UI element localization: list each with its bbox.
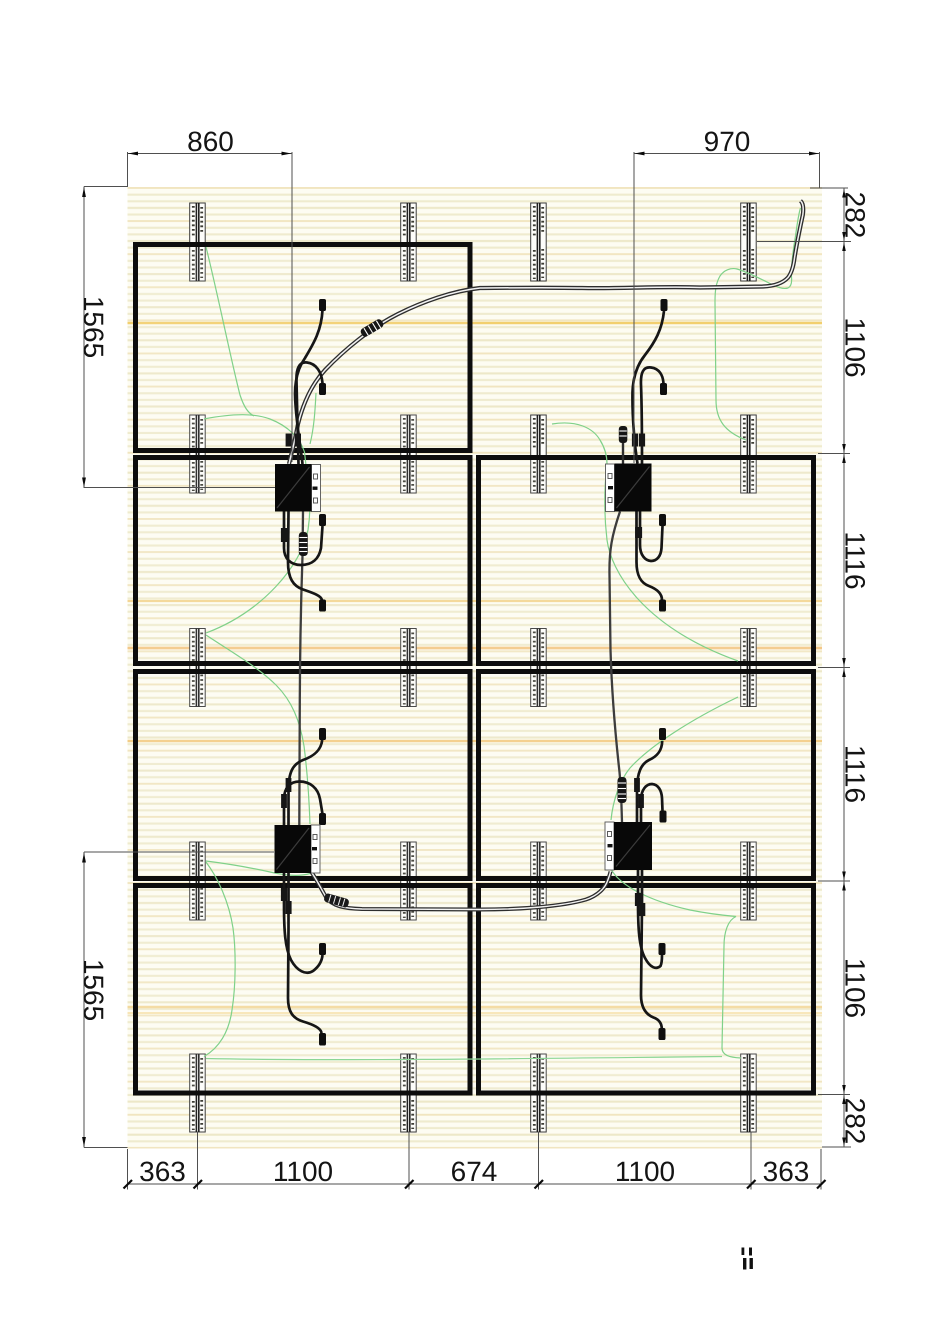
svg-text:674: 674 xyxy=(451,1156,498,1187)
svg-text:1116: 1116 xyxy=(840,531,871,589)
svg-text:363: 363 xyxy=(763,1156,810,1187)
svg-text:1565: 1565 xyxy=(78,296,109,358)
svg-text:1100: 1100 xyxy=(273,1156,333,1187)
svg-text:1116: 1116 xyxy=(840,745,871,803)
svg-text:1106: 1106 xyxy=(840,317,871,377)
svg-text:1565: 1565 xyxy=(78,959,109,1021)
svg-text:363: 363 xyxy=(139,1156,186,1187)
svg-text:860: 860 xyxy=(187,126,234,157)
svg-text:1100: 1100 xyxy=(615,1156,675,1187)
svg-text:282: 282 xyxy=(840,1098,871,1145)
svg-text:970: 970 xyxy=(704,126,751,157)
svg-text:1106: 1106 xyxy=(840,958,871,1018)
svg-text:282: 282 xyxy=(840,192,871,239)
